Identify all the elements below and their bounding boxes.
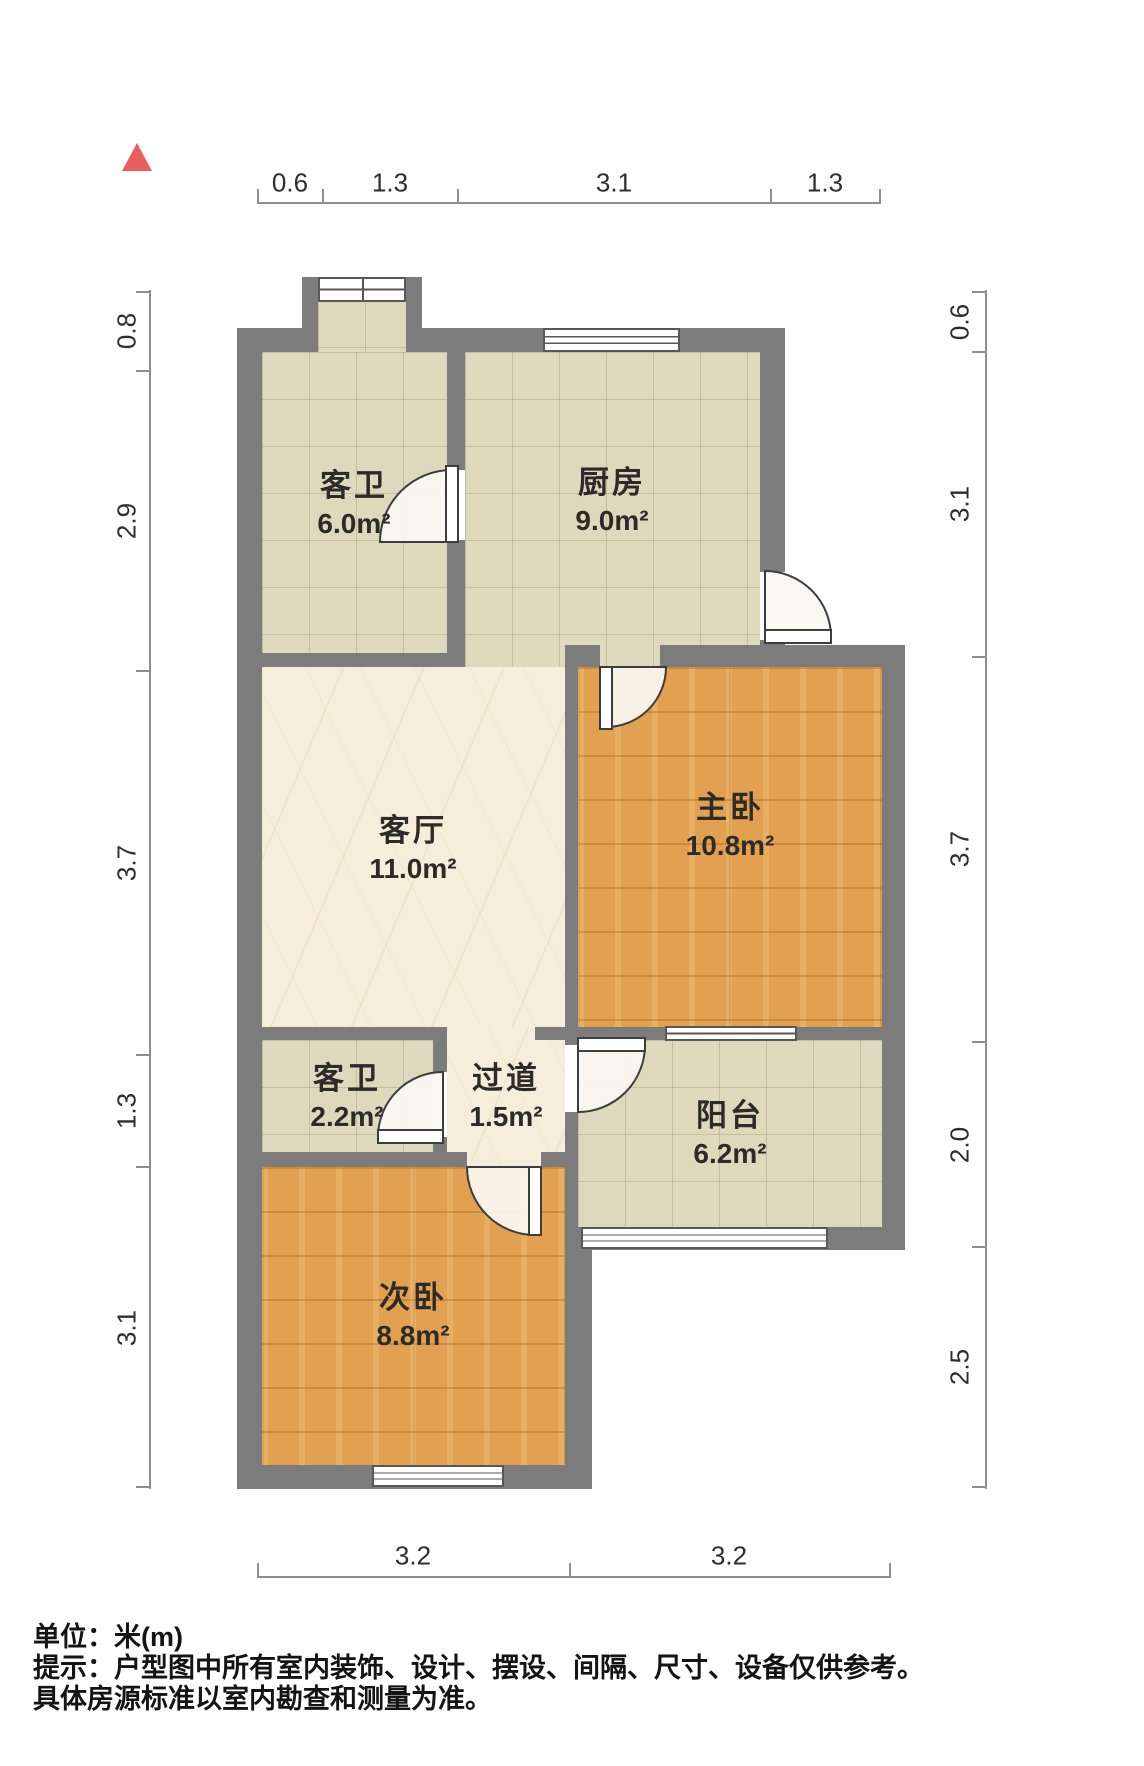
dimension-tick <box>136 370 151 372</box>
dimension-label: 3.2 <box>711 1541 747 1572</box>
dimension-label: 3.1 <box>112 1310 143 1346</box>
room-name: 客厅 <box>369 805 456 850</box>
dimension-label: 3.7 <box>112 845 143 881</box>
room-area: 11.0m² <box>369 853 456 885</box>
wall <box>237 1027 447 1040</box>
dimension-tick <box>972 656 987 658</box>
dimension-label: 3.1 <box>596 168 632 199</box>
window <box>543 328 680 352</box>
room-label-balcony: 阳台 6.2m² <box>693 1090 766 1170</box>
wall <box>760 328 785 572</box>
wall <box>565 645 600 667</box>
room-area: 6.2m² <box>693 1138 766 1170</box>
dimension-tick <box>972 291 987 293</box>
room-label-guest-bathroom-2: 客卫 2.2m² <box>310 1053 383 1133</box>
dimension-label: 1.3 <box>372 168 408 199</box>
dimension-label: 2.5 <box>945 1349 976 1385</box>
disclaimer-line-2: 具体房源标准以室内勘查和测量为准。 <box>33 1684 924 1715</box>
dimension-tick <box>972 1486 987 1488</box>
dimension-label: 0.6 <box>272 168 308 199</box>
wall <box>882 645 905 1250</box>
unit-note: 单位：米(m) <box>33 1622 924 1653</box>
dimension-label: 0.8 <box>112 313 143 349</box>
room-area: 6.0m² <box>317 508 390 540</box>
room-label-second-bedroom: 次卧 8.8m² <box>376 1272 449 1352</box>
room-area: 9.0m² <box>575 505 648 537</box>
dimension-tick <box>972 1041 987 1043</box>
wall <box>660 645 905 667</box>
room-name: 阳台 <box>693 1090 766 1135</box>
dimension-tick <box>569 1563 571 1578</box>
room-label-master-bedroom: 主卧 10.8m² <box>686 782 775 862</box>
wall <box>406 277 422 352</box>
wall <box>447 540 465 655</box>
wall <box>237 1152 467 1167</box>
room-area: 8.8m² <box>376 1320 449 1352</box>
window <box>665 1026 797 1041</box>
room-area: 1.5m² <box>469 1101 542 1133</box>
window-mullion <box>362 279 364 300</box>
dimension-tick <box>322 189 324 204</box>
room-name: 厨房 <box>575 457 648 502</box>
right-dimension-line <box>985 290 987 1489</box>
top-dimension-line <box>258 202 880 204</box>
wall <box>535 1027 578 1040</box>
dimension-label: 1.3 <box>807 168 843 199</box>
room-area: 10.8m² <box>686 830 775 862</box>
wall <box>433 1040 447 1072</box>
window <box>318 277 406 302</box>
dimension-label: 2.0 <box>945 1127 976 1163</box>
disclaimer-line-1: 提示：户型图中所有室内装饰、设计、摆设、间隔、尺寸、设备仅供参考。 <box>33 1653 924 1684</box>
room-floor-bump <box>318 300 406 354</box>
room-label-hallway: 过道 1.5m² <box>469 1053 542 1133</box>
dimension-label: 3.1 <box>945 486 976 522</box>
dimension-tick <box>136 1166 151 1168</box>
dimension-tick <box>879 189 881 204</box>
wall <box>541 1152 578 1167</box>
room-name: 客卫 <box>317 460 390 505</box>
entry-door <box>765 571 831 643</box>
dimension-label: 1.3 <box>112 1093 143 1129</box>
dimension-tick <box>770 189 772 204</box>
wall <box>447 352 465 470</box>
north-arrow-icon <box>122 143 152 171</box>
dimension-tick <box>136 1486 151 1488</box>
wall <box>565 1250 592 1489</box>
dimension-label: 2.9 <box>112 503 143 539</box>
dimension-tick <box>889 1563 891 1578</box>
window <box>372 1465 504 1487</box>
dimension-label: 0.6 <box>945 304 976 340</box>
floor-plan-canvas: 客卫 6.0m² 厨房 9.0m² 客厅 11.0m² 主卧 10.8m² 客卫… <box>0 0 1144 1766</box>
dimension-label: 3.7 <box>945 831 976 867</box>
wall <box>237 328 262 1489</box>
dimension-tick <box>257 1563 259 1578</box>
wall <box>565 667 578 1045</box>
left-dimension-line <box>149 290 151 1489</box>
room-name: 客卫 <box>310 1053 383 1098</box>
window <box>581 1227 828 1249</box>
dimension-tick <box>136 670 151 672</box>
dimension-tick <box>972 1246 987 1248</box>
dimension-tick <box>257 189 259 204</box>
room-area: 2.2m² <box>310 1101 383 1133</box>
room-name: 次卧 <box>376 1272 449 1317</box>
room-label-kitchen: 厨房 9.0m² <box>575 457 648 537</box>
room-label-living-room: 客厅 11.0m² <box>369 805 456 885</box>
room-name: 过道 <box>469 1053 542 1098</box>
wall <box>237 653 465 667</box>
dimension-tick <box>457 189 459 204</box>
dimension-tick <box>136 1054 151 1056</box>
bottom-dimension-line <box>258 1576 890 1578</box>
footer-notes: 单位：米(m) 提示：户型图中所有室内装饰、设计、摆设、间隔、尺寸、设备仅供参考… <box>33 1622 924 1715</box>
wall <box>302 277 318 352</box>
dimension-tick <box>136 291 151 293</box>
dimension-tick <box>972 351 987 353</box>
room-name: 主卧 <box>686 782 775 827</box>
dimension-label: 3.2 <box>395 1541 431 1572</box>
room-label-guest-bathroom-1: 客卫 6.0m² <box>317 460 390 540</box>
